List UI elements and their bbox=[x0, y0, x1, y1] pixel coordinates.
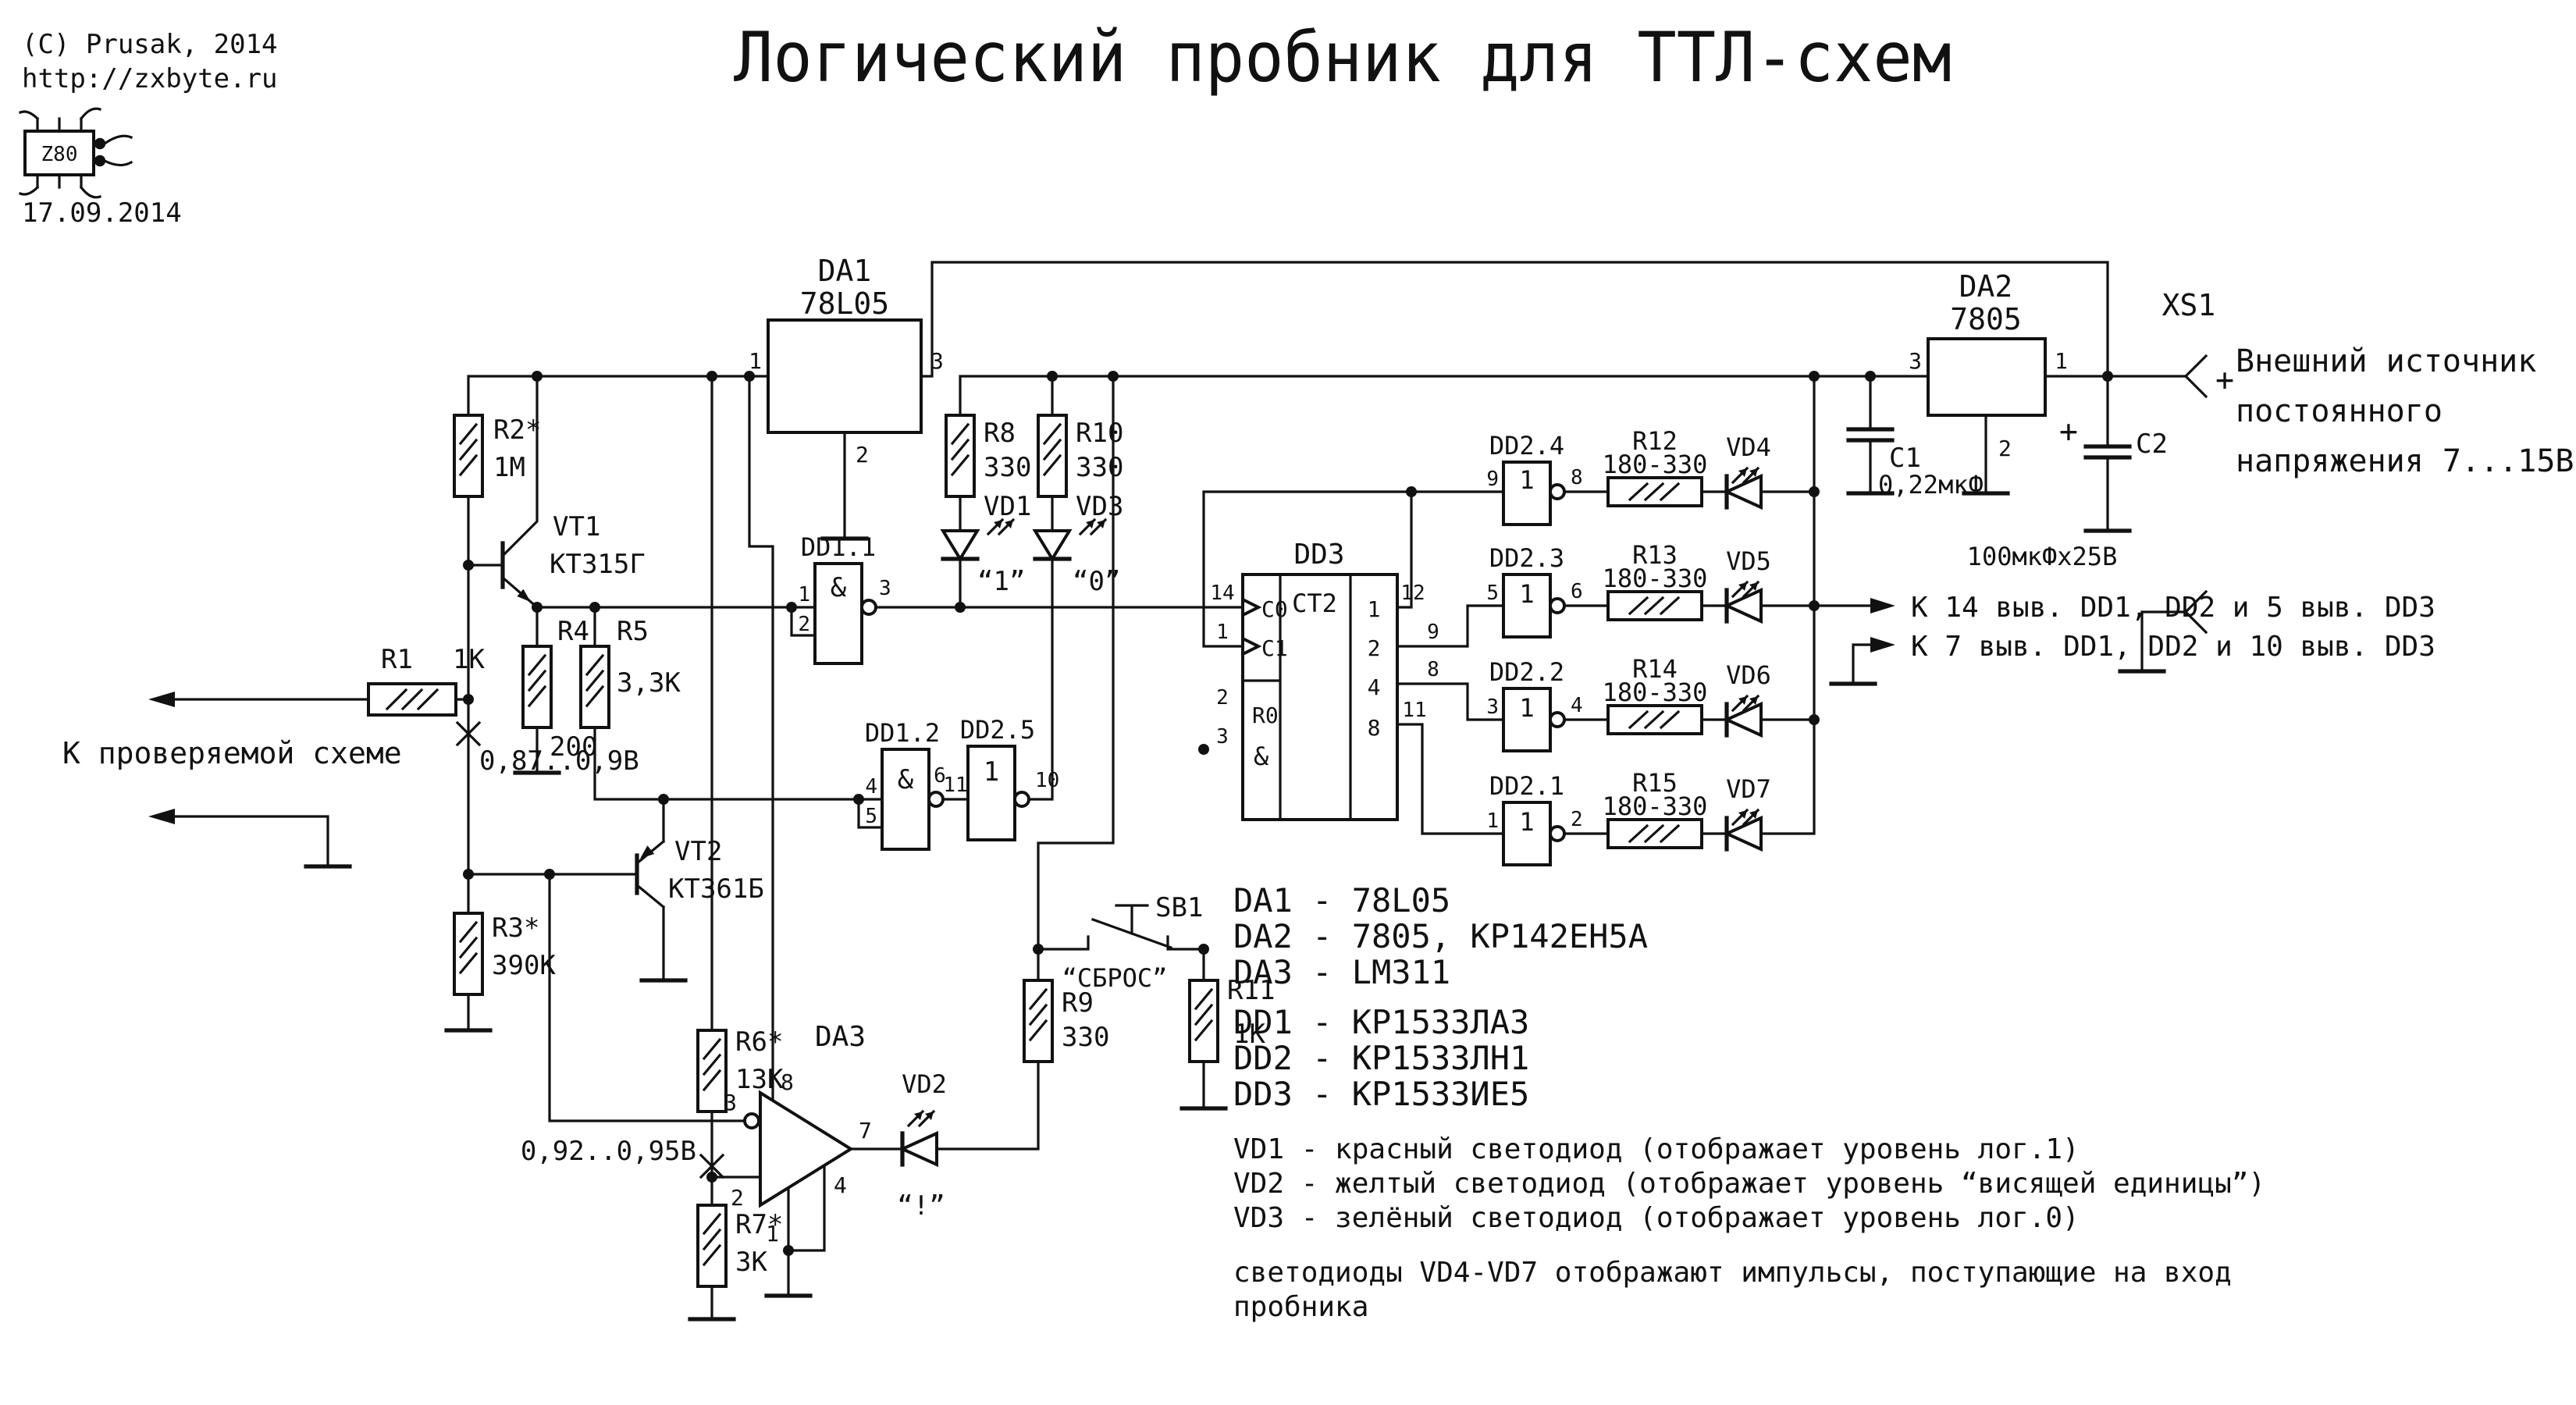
junction-dot bbox=[1406, 486, 1417, 497]
z80-bug-logo: Z80 bbox=[20, 108, 131, 197]
vd1-tag: “1” bbox=[977, 566, 1025, 597]
pulse-indicator-rows: DD2.4 1 9 8 R12 180-330 VD4 DD2.3 1 5 6 … bbox=[1486, 426, 1771, 865]
xs1-label: XS1 bbox=[2162, 288, 2216, 322]
junction-dot bbox=[706, 1172, 717, 1183]
xs1-note-line2: постоянного bbox=[2236, 393, 2443, 429]
r15-value: 180-330 bbox=[1603, 791, 1708, 821]
resistor-r6 bbox=[698, 1030, 726, 1112]
r3-value: 390K bbox=[492, 950, 556, 981]
vcc-arrow bbox=[1870, 598, 1895, 614]
dd23-inversion-bubble bbox=[1550, 599, 1564, 613]
resistor-r11 bbox=[1190, 980, 1218, 1062]
note-vd47-line1: светодиоды VD4-VD7 отображают импульсы, … bbox=[1233, 1257, 2232, 1289]
probe-arrow bbox=[148, 809, 175, 824]
dd12-pin5: 5 bbox=[865, 805, 877, 828]
vt2-type: КТ361Б bbox=[668, 873, 764, 905]
r5-label: R5 bbox=[617, 616, 649, 647]
dd22-inv-symbol: 1 bbox=[1519, 693, 1534, 723]
dd12-label: DD1.2 bbox=[865, 718, 940, 748]
probe-note: К проверяемой схеме bbox=[62, 736, 402, 770]
junction-dot bbox=[853, 794, 864, 805]
resistor-r12 bbox=[1608, 478, 1702, 506]
probe-arrow bbox=[148, 692, 175, 707]
dd3-pin3: 3 bbox=[1216, 725, 1229, 749]
vd3-label: VD3 bbox=[1076, 491, 1123, 522]
resistor-r14 bbox=[1608, 706, 1702, 734]
junction-dot bbox=[1809, 714, 1820, 725]
dd12-inversion-bubble bbox=[929, 792, 943, 806]
schematic-page: (C) Prusak, 2014 http://zxbyte.ru Z80 17… bbox=[0, 0, 2576, 1405]
date: 17.09.2014 bbox=[22, 197, 182, 229]
r12-value: 180-330 bbox=[1603, 450, 1708, 479]
vt2-label: VT2 bbox=[674, 836, 722, 867]
dd21-pin-in: 1 bbox=[1486, 809, 1499, 833]
dd24-pin-out: 8 bbox=[1571, 466, 1583, 489]
dd11-pin3: 3 bbox=[879, 577, 891, 600]
resistor-r4 bbox=[523, 646, 551, 727]
da3-inverting-bubble bbox=[745, 1114, 759, 1128]
bom-da2: DA2 - 7805, КР142ЕН5А bbox=[1233, 917, 1648, 955]
da2-pin3: 3 bbox=[1909, 348, 1922, 374]
dd3-pin12: 12 bbox=[1400, 582, 1425, 605]
dd11-pin1: 1 bbox=[798, 583, 810, 606]
dd3-c1: C1 bbox=[1261, 635, 1288, 661]
dd3-pin8: 8 bbox=[1427, 658, 1439, 681]
regulator-da2: DA2 7805 3 1 2 C1 0,22мкФ + C2 100мкФх25… bbox=[1878, 269, 2574, 571]
resistor-r15 bbox=[1608, 820, 1702, 848]
note-vd47-line2: пробника bbox=[1233, 1291, 1368, 1323]
note-vd1: VD1 - красный светодиод (отображает уров… bbox=[1233, 1133, 2080, 1165]
resistor-r3 bbox=[454, 913, 482, 994]
resistor-r7 bbox=[698, 1205, 726, 1286]
dd21-pin-out: 2 bbox=[1571, 808, 1583, 831]
dd11-inversion-bubble bbox=[862, 600, 876, 614]
r14-value: 180-330 bbox=[1603, 678, 1708, 707]
dd3-label: DD3 bbox=[1293, 539, 1344, 571]
dd3-r0: R0 bbox=[1252, 702, 1279, 728]
dd22-inversion-bubble bbox=[1550, 713, 1564, 727]
r4-value: 200 bbox=[550, 731, 597, 763]
dd25-label: DD2.5 bbox=[960, 715, 1035, 745]
ref-voltage: 0,92..0,95В bbox=[521, 1136, 696, 1167]
xs1-plus: + bbox=[2215, 362, 2234, 398]
c2-plus: + bbox=[2059, 414, 2078, 450]
da3-label: DA3 bbox=[815, 1021, 866, 1053]
r5-value: 3,3K bbox=[617, 667, 681, 699]
junction-dot bbox=[544, 869, 555, 880]
supply-arrows: К 14 выв. DD1, DD2 и 5 выв. DD3 К 7 выв.… bbox=[1870, 592, 2435, 663]
da2-part: 7805 bbox=[1950, 302, 2022, 336]
comparator-da3: DA3 3 2 8 7 1 4 0,92..0,95В R6* 13K R7* … bbox=[521, 1021, 947, 1286]
gnd-note: К 7 выв. DD1, DD2 и 10 выв. DD3 bbox=[1911, 631, 2435, 663]
vt1-label: VT1 bbox=[553, 511, 600, 542]
dd3-type: CT2 bbox=[1292, 589, 1337, 618]
vd2-tag: “!” bbox=[897, 1190, 945, 1222]
vd1-label: VD1 bbox=[984, 491, 1031, 522]
dd3-pin14: 14 bbox=[1210, 582, 1234, 605]
xs1-prongs bbox=[2186, 356, 2206, 632]
bom-notes: DA1 - 78L05 DA2 - 7805, КР142ЕН5А DA3 - … bbox=[1233, 881, 2265, 1323]
junction-dot bbox=[532, 371, 543, 382]
junction-dot bbox=[783, 1245, 794, 1256]
r2-value: 1М bbox=[493, 452, 525, 483]
resistor-r2 bbox=[454, 415, 482, 496]
junction-dot bbox=[589, 602, 600, 613]
vt2-emitter-arrow bbox=[640, 845, 654, 859]
dd24-inv-symbol: 1 bbox=[1519, 465, 1534, 495]
xs1-note-line1: Внешний источник bbox=[2236, 343, 2536, 379]
vd5-label: VD5 bbox=[1726, 546, 1771, 576]
resistor-r1 bbox=[368, 684, 456, 715]
dd12-pin4: 4 bbox=[865, 775, 877, 799]
led-vd1 bbox=[943, 531, 977, 559]
xs1-note-line3: напряжения 7...15В bbox=[2236, 443, 2574, 479]
vd6-label: VD6 bbox=[1726, 660, 1771, 690]
regulator-da1: DA1 78L05 1 3 2 bbox=[749, 254, 944, 468]
logo-text: Z80 bbox=[41, 143, 78, 166]
junction-dot bbox=[1809, 600, 1820, 611]
junction-dot bbox=[706, 371, 717, 382]
dd3-c0: C0 bbox=[1261, 596, 1288, 622]
junction-dot bbox=[1198, 944, 1209, 955]
r6-value: 13K bbox=[735, 1064, 784, 1095]
vcc-note: К 14 выв. DD1, DD2 и 5 выв. DD3 bbox=[1911, 592, 2435, 624]
vd2-label: VD2 bbox=[902, 1069, 947, 1099]
dd23-inv-symbol: 1 bbox=[1519, 579, 1534, 609]
led-light-arrows bbox=[909, 1112, 934, 1126]
da2-pin2: 2 bbox=[1998, 436, 2012, 461]
vd7-label: VD7 bbox=[1726, 774, 1771, 804]
resistor-r10 bbox=[1038, 415, 1066, 496]
r4-label: R4 bbox=[557, 616, 589, 647]
da2-pin1: 1 bbox=[2055, 348, 2068, 374]
dd3-pin9: 9 bbox=[1427, 621, 1439, 644]
da1-label: DA1 bbox=[818, 254, 872, 288]
da1-body bbox=[768, 320, 921, 432]
resistor-r13 bbox=[1608, 592, 1702, 620]
junction-dot bbox=[532, 602, 543, 613]
dd24-label: DD2.4 bbox=[1489, 431, 1564, 461]
dd3-pin1: 1 bbox=[1216, 621, 1229, 644]
dd25-inversion-bubble bbox=[1015, 792, 1029, 806]
dd23-pin-in: 5 bbox=[1486, 582, 1499, 605]
dd22-pin-in: 3 bbox=[1486, 695, 1499, 719]
dd11-and-symbol: & bbox=[831, 572, 847, 603]
da1-pin3: 3 bbox=[930, 348, 944, 374]
dd21-label: DD2.1 bbox=[1489, 771, 1564, 801]
r1-value: 1K bbox=[453, 644, 485, 675]
r10-value: 330 bbox=[1076, 452, 1123, 483]
vd4-label: VD4 bbox=[1726, 432, 1771, 462]
junction-dot bbox=[463, 694, 474, 705]
led-vd2 bbox=[902, 1133, 937, 1165]
dd12-and-symbol: & bbox=[898, 764, 914, 795]
front-end: R2* 1М R3* 390K R4 200 R5 3,3K VT1 КТ315… bbox=[454, 414, 764, 994]
da2-label: DA2 bbox=[1959, 269, 2013, 304]
da1-part: 78L05 bbox=[800, 286, 889, 321]
dd3-pin11: 11 bbox=[1402, 699, 1426, 722]
junction-dot bbox=[463, 869, 474, 880]
da1-pin2: 2 bbox=[856, 442, 869, 468]
da2-body bbox=[1928, 339, 2045, 415]
dd21-inversion-bubble bbox=[1550, 827, 1564, 841]
bom-da1: DA1 - 78L05 bbox=[1233, 881, 1450, 919]
header: (C) Prusak, 2014 http://zxbyte.ru Z80 17… bbox=[20, 17, 1952, 229]
da3-pin2: 2 bbox=[731, 1185, 744, 1211]
dd3-q4: 4 bbox=[1368, 674, 1381, 700]
dd11-label: DD1.1 bbox=[801, 532, 876, 562]
dd3-and: & bbox=[1254, 742, 1269, 771]
r10-label: R10 bbox=[1076, 418, 1123, 449]
gnd-arrow bbox=[1870, 637, 1895, 653]
junction-dot bbox=[1809, 486, 1820, 497]
c2-value: 100мкФх25В bbox=[1967, 542, 2118, 571]
bom-dd2: DD2 - КР1533ЛН1 bbox=[1233, 1039, 1529, 1077]
da1-pin1: 1 bbox=[749, 348, 762, 374]
dd23-label: DD2.3 bbox=[1489, 543, 1564, 573]
junction-dot bbox=[1047, 371, 1058, 382]
page-title: Логический пробник для ТТЛ-схем bbox=[734, 17, 1952, 98]
dd22-pin-out: 4 bbox=[1571, 694, 1583, 717]
resistor-r5 bbox=[581, 646, 609, 727]
note-vd3: VD3 - зелёный светодиод (отображает уров… bbox=[1233, 1202, 2080, 1234]
r9-label: R9 bbox=[1062, 987, 1094, 1019]
dd11-pin2: 2 bbox=[798, 613, 810, 636]
site-url: http://zxbyte.ru bbox=[22, 63, 278, 94]
r3-label: R3* bbox=[492, 912, 539, 944]
dd3-q2: 2 bbox=[1368, 635, 1381, 661]
bom-dd1: DD1 - КР1533ЛА3 bbox=[1233, 1003, 1529, 1041]
logo-whiskers bbox=[105, 136, 131, 165]
dd25-inv-symbol: 1 bbox=[984, 756, 999, 788]
junction-dot bbox=[786, 602, 797, 613]
copyright: (C) Prusak, 2014 bbox=[22, 29, 278, 60]
dd3-q1: 1 bbox=[1368, 596, 1381, 622]
junction-dot bbox=[2102, 371, 2113, 382]
sb1-label: SB1 bbox=[1155, 892, 1203, 923]
junction-dot bbox=[658, 794, 669, 805]
r6-label: R6* bbox=[735, 1026, 783, 1058]
note-vd2: VD2 - желтый светодиод (отображает урове… bbox=[1233, 1168, 2265, 1200]
junction-dot bbox=[1198, 744, 1209, 755]
dd23-pin-out: 6 bbox=[1571, 580, 1583, 603]
da3-pin4: 4 bbox=[834, 1172, 847, 1198]
bom-dd3: DD3 - КР1533ИЕ5 bbox=[1233, 1075, 1529, 1113]
r8-value: 330 bbox=[984, 452, 1031, 483]
dd3-pin2: 2 bbox=[1216, 686, 1229, 710]
r2-label: R2* bbox=[493, 414, 541, 446]
led-vd3 bbox=[1035, 531, 1069, 559]
dd24-pin-in: 9 bbox=[1486, 468, 1499, 491]
junction-dot bbox=[1865, 371, 1876, 382]
c1-label: C1 bbox=[1889, 443, 1921, 474]
c1-value: 0,22мкФ bbox=[1878, 470, 1984, 500]
junction-dot bbox=[1809, 371, 1820, 382]
c2-label: C2 bbox=[2136, 429, 2168, 460]
da3-pin7: 7 bbox=[859, 1118, 872, 1144]
bom-da3: DA3 - LM311 bbox=[1233, 953, 1450, 991]
r8-label: R8 bbox=[984, 418, 1016, 449]
dd25-pin11: 11 bbox=[943, 774, 967, 797]
r13-value: 180-330 bbox=[1603, 564, 1708, 593]
dd21-inv-symbol: 1 bbox=[1519, 807, 1534, 837]
junction-dot bbox=[1108, 371, 1119, 382]
counter-dd3: DD3 CT2 C0 C1 R0 & 1 2 4 8 14 1 2 3 12 9… bbox=[1210, 539, 1439, 820]
r1-label: R1 bbox=[381, 644, 413, 675]
vd3-tag: “0” bbox=[1073, 566, 1120, 597]
level-leds: R8 330 R10 330 VD1 “1” VD3 “0” bbox=[943, 415, 1123, 597]
resistor-r9 bbox=[1024, 980, 1052, 1062]
dd3-q8: 8 bbox=[1368, 715, 1381, 741]
vt1-type: КТ315Г bbox=[550, 549, 646, 580]
r7-label: R7* bbox=[735, 1209, 783, 1240]
resistor-r8 bbox=[946, 415, 974, 496]
r9-value: 330 bbox=[1062, 1022, 1109, 1053]
dd22-label: DD2.2 bbox=[1489, 657, 1564, 687]
schematic-canvas: (C) Prusak, 2014 http://zxbyte.ru Z80 17… bbox=[0, 0, 2576, 1405]
dd24-inversion-bubble bbox=[1550, 485, 1564, 499]
junction-dot bbox=[463, 560, 474, 571]
dd25-pin10: 10 bbox=[1035, 769, 1059, 792]
junction-dot bbox=[955, 602, 966, 613]
junction-dot bbox=[1033, 944, 1044, 955]
r7-value: 3K bbox=[735, 1247, 767, 1278]
